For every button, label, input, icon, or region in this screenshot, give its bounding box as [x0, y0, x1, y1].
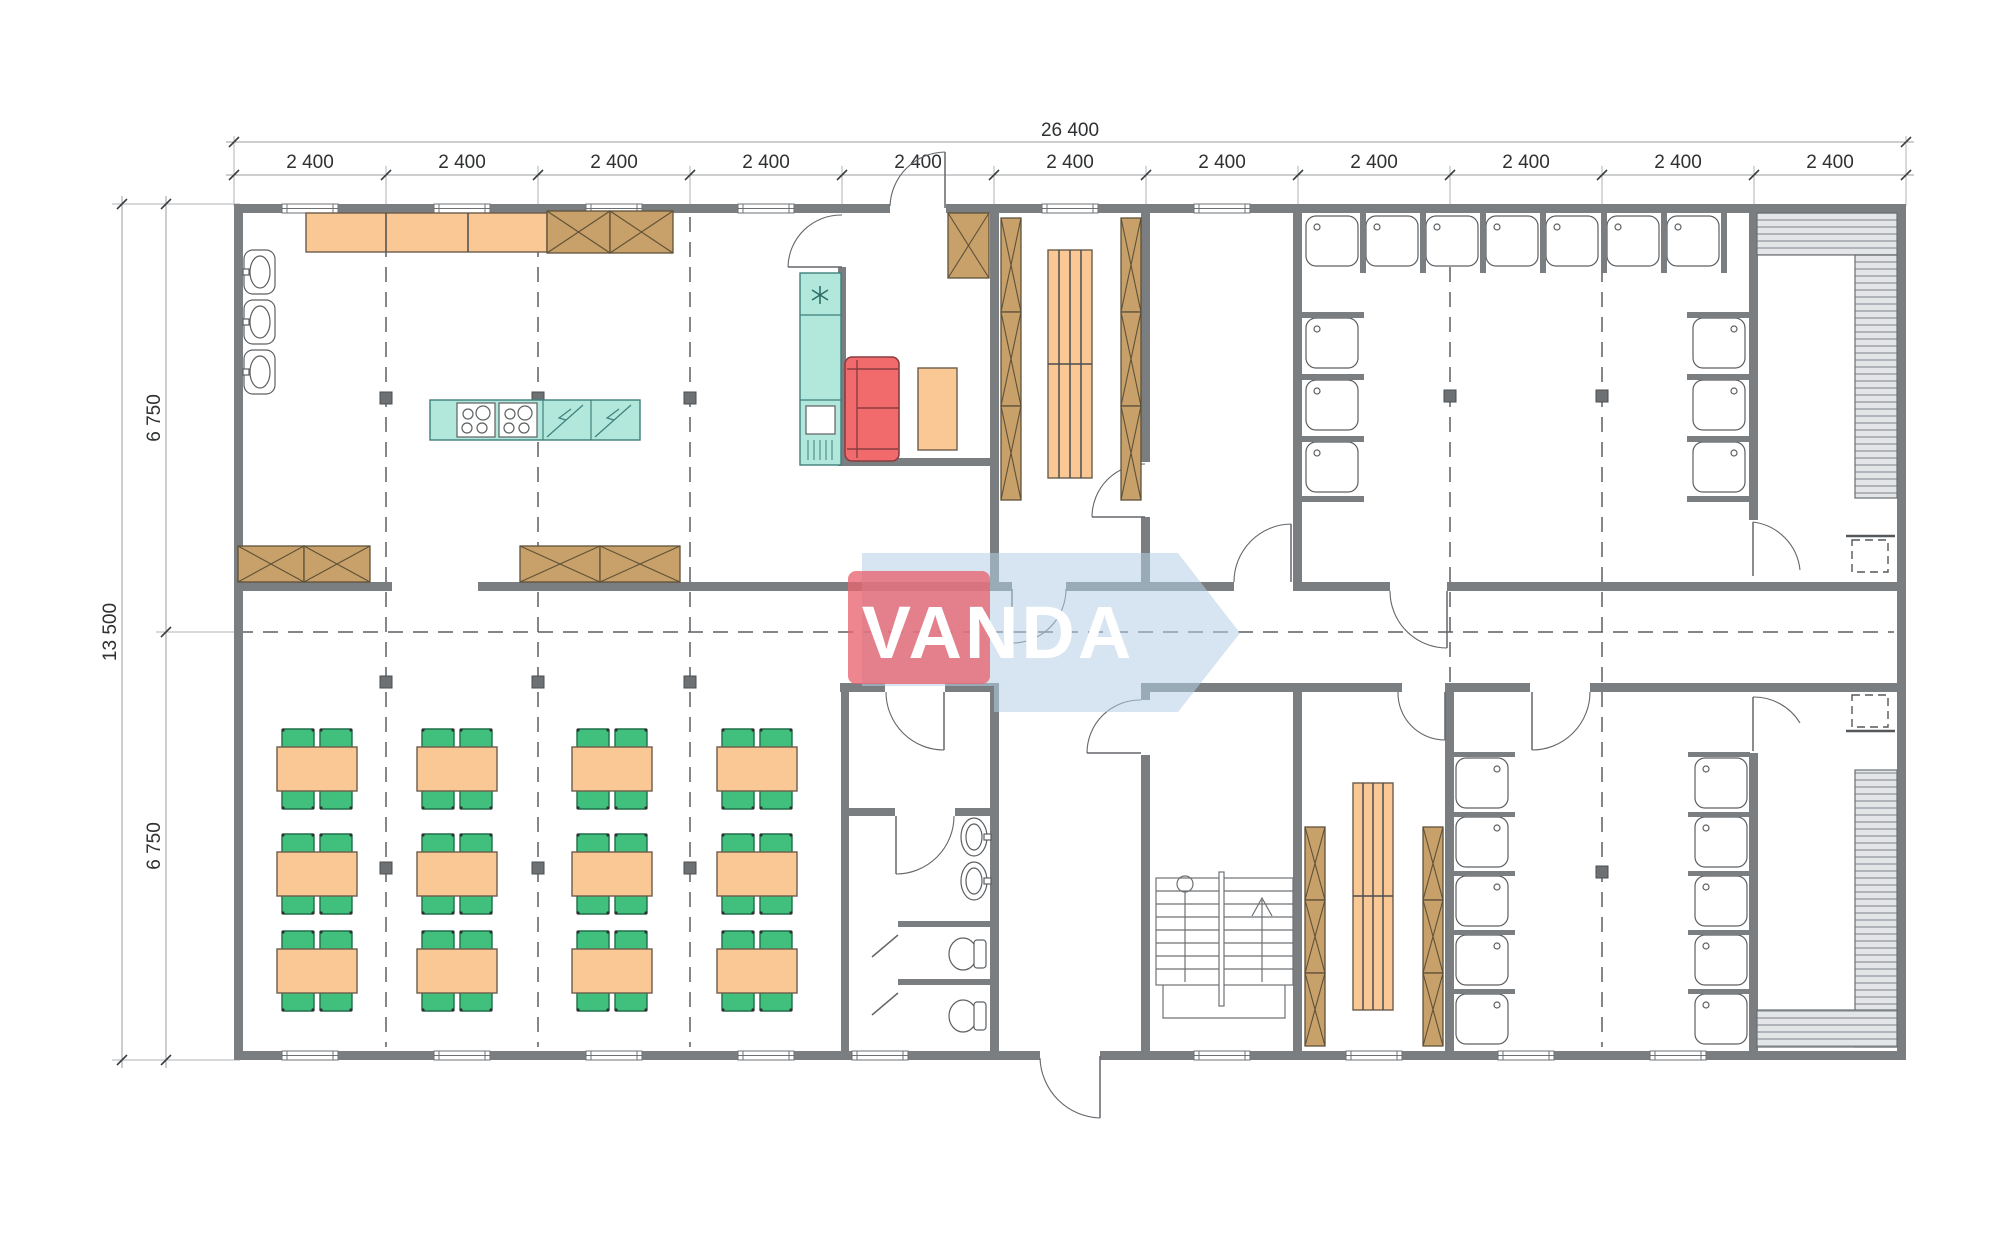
dim-label-bay-3: 2 400 — [590, 152, 638, 173]
sauna-top — [1757, 213, 1897, 572]
wall-corridor-south-4 — [1447, 683, 1530, 692]
dim-label-bay-7: 2 400 — [1198, 152, 1246, 173]
wall-corridor-south-5 — [1590, 683, 1906, 692]
shower-col-east — [1687, 312, 1749, 502]
wall-corridor-north-3 — [1447, 582, 1906, 591]
dining-table-set — [277, 833, 357, 914]
dim-label-bay-11: 2 400 — [1806, 152, 1854, 173]
kitchenette-unit — [800, 273, 841, 465]
wc-stall-doors — [872, 935, 898, 1015]
wall-corridor-north-2 — [1293, 582, 1390, 591]
window — [1346, 1051, 1402, 1060]
wc-stall-partition-2 — [898, 979, 990, 985]
window — [434, 204, 490, 213]
main-entrance-door — [1040, 1050, 1100, 1118]
door-washroom — [1532, 692, 1590, 750]
dim-label-bay-6: 2 400 — [1046, 152, 1094, 173]
door-wc-vestibule — [886, 692, 944, 750]
dim-label-bay-5: 2 400 — [894, 152, 942, 173]
sauna-bench — [1855, 255, 1897, 498]
toilet — [949, 938, 986, 970]
window — [738, 204, 794, 213]
exterior-wall-left — [234, 204, 243, 1060]
floor-plan-svg: 26 400 2 400 2 400 2 400 2 400 2 400 2 4… — [0, 0, 2000, 1235]
washroom-shower-col-west — [1453, 752, 1515, 1044]
door-changing-room — [1398, 692, 1445, 740]
dim-label-bay-8: 2 400 — [1350, 152, 1398, 173]
washroom-shower-col-east — [1688, 752, 1750, 1044]
watermark-text: VANDA — [862, 591, 1135, 674]
staircase — [1156, 872, 1293, 1018]
wall-stair-west-2 — [1141, 755, 1150, 1060]
wall-changing-west — [1293, 683, 1302, 1060]
shower-room-top — [1302, 213, 1749, 502]
wc-stall-partition-1 — [898, 921, 990, 927]
kitchen-counter — [306, 213, 547, 252]
dining-table-set — [717, 833, 797, 914]
wall-wc-north-1 — [846, 808, 895, 816]
window — [586, 1051, 642, 1060]
dimension-top-segments: 2 400 2 400 2 400 2 400 2 400 2 400 2 40… — [226, 152, 1914, 180]
lounge-cabinet — [948, 213, 989, 278]
sauna-heater — [1846, 536, 1895, 572]
sauna-bottom — [1757, 695, 1897, 1047]
changing-room — [1305, 783, 1443, 1046]
changing-bench — [1353, 783, 1393, 1010]
window — [1042, 204, 1098, 213]
dining-table-set — [572, 833, 652, 914]
toilet — [949, 1000, 986, 1032]
stove-top — [499, 403, 537, 437]
dim-label-bay-4: 2 400 — [742, 152, 790, 173]
drying-room — [1001, 218, 1141, 500]
dim-label-left-lower: 6 750 — [144, 822, 165, 870]
sauna-heater — [1846, 695, 1895, 731]
wall-shower-west — [1293, 204, 1302, 591]
window — [282, 1051, 338, 1060]
dim-label-bay-10: 2 400 — [1654, 152, 1702, 173]
drying-bench — [1048, 250, 1092, 478]
wall-wc-east — [990, 683, 999, 1060]
wall-kitchen-south-1 — [234, 582, 392, 591]
window — [434, 1051, 490, 1060]
kitchen-sinks — [243, 250, 275, 394]
dining-table-set — [417, 833, 497, 914]
dim-label-bay-9: 2 400 — [1502, 152, 1550, 173]
kitchen-wall-cabinet — [610, 211, 673, 253]
sauna-bench — [1757, 1010, 1897, 1047]
dining-table-set — [717, 930, 797, 1011]
dining-table-set — [572, 728, 652, 809]
sauna-bench — [1757, 213, 1897, 255]
stairwell — [1156, 872, 1293, 1018]
kitchen-low-cabinets — [238, 546, 680, 582]
sauna-bench — [1855, 770, 1897, 1047]
door-sauna-bottom — [1753, 697, 1800, 751]
shower-col-west — [1302, 312, 1364, 502]
window — [852, 1051, 908, 1060]
dim-label-top-total: 26 400 — [1041, 120, 1099, 141]
wall-changing-east — [1445, 683, 1454, 1060]
dining-table-set — [417, 930, 497, 1011]
door-sauna-top — [1753, 522, 1800, 576]
dining-table-set — [717, 728, 797, 809]
sofa — [845, 357, 899, 461]
window — [1650, 1051, 1706, 1060]
exterior-wall-right — [1897, 204, 1906, 1060]
dim-label-left-total: 13 500 — [100, 603, 121, 661]
wash-basin — [961, 818, 991, 856]
dining-table-set — [277, 728, 357, 809]
window — [1194, 204, 1250, 213]
wall-drying-east-1 — [1141, 204, 1150, 462]
kitchen-island — [430, 400, 640, 440]
window — [738, 1051, 794, 1060]
coffee-table — [918, 368, 957, 450]
wall-wc-west — [841, 683, 849, 1060]
window — [282, 204, 338, 213]
dining-table-set — [277, 930, 357, 1011]
dining-table-set — [572, 930, 652, 1011]
door-lounge — [788, 215, 842, 267]
staff-lounge — [845, 213, 989, 461]
wall-lounge-east — [990, 204, 999, 591]
door-shower-room — [1390, 591, 1447, 648]
door-wc-room — [896, 816, 954, 874]
dim-label-left-upper: 6 750 — [144, 394, 165, 442]
dimension-top-total: 26 400 — [226, 120, 1914, 147]
dim-label-bay-2: 2 400 — [438, 152, 486, 173]
door-storeroom — [1234, 524, 1291, 582]
dining-table-set — [417, 728, 497, 809]
watermark: VANDA — [848, 553, 1240, 712]
dimension-left-total: 13 500 — [100, 196, 127, 1068]
stove-top — [457, 403, 495, 437]
floor-plan-page: 26 400 2 400 2 400 2 400 2 400 2 400 2 4… — [0, 0, 2000, 1235]
wash-basin — [961, 862, 991, 900]
kitchen-wall-cabinet — [547, 211, 610, 253]
shower-row-north — [1306, 213, 1727, 273]
window — [1498, 1051, 1554, 1060]
dim-label-bay-1: 2 400 — [286, 152, 334, 173]
window — [1194, 1051, 1250, 1060]
